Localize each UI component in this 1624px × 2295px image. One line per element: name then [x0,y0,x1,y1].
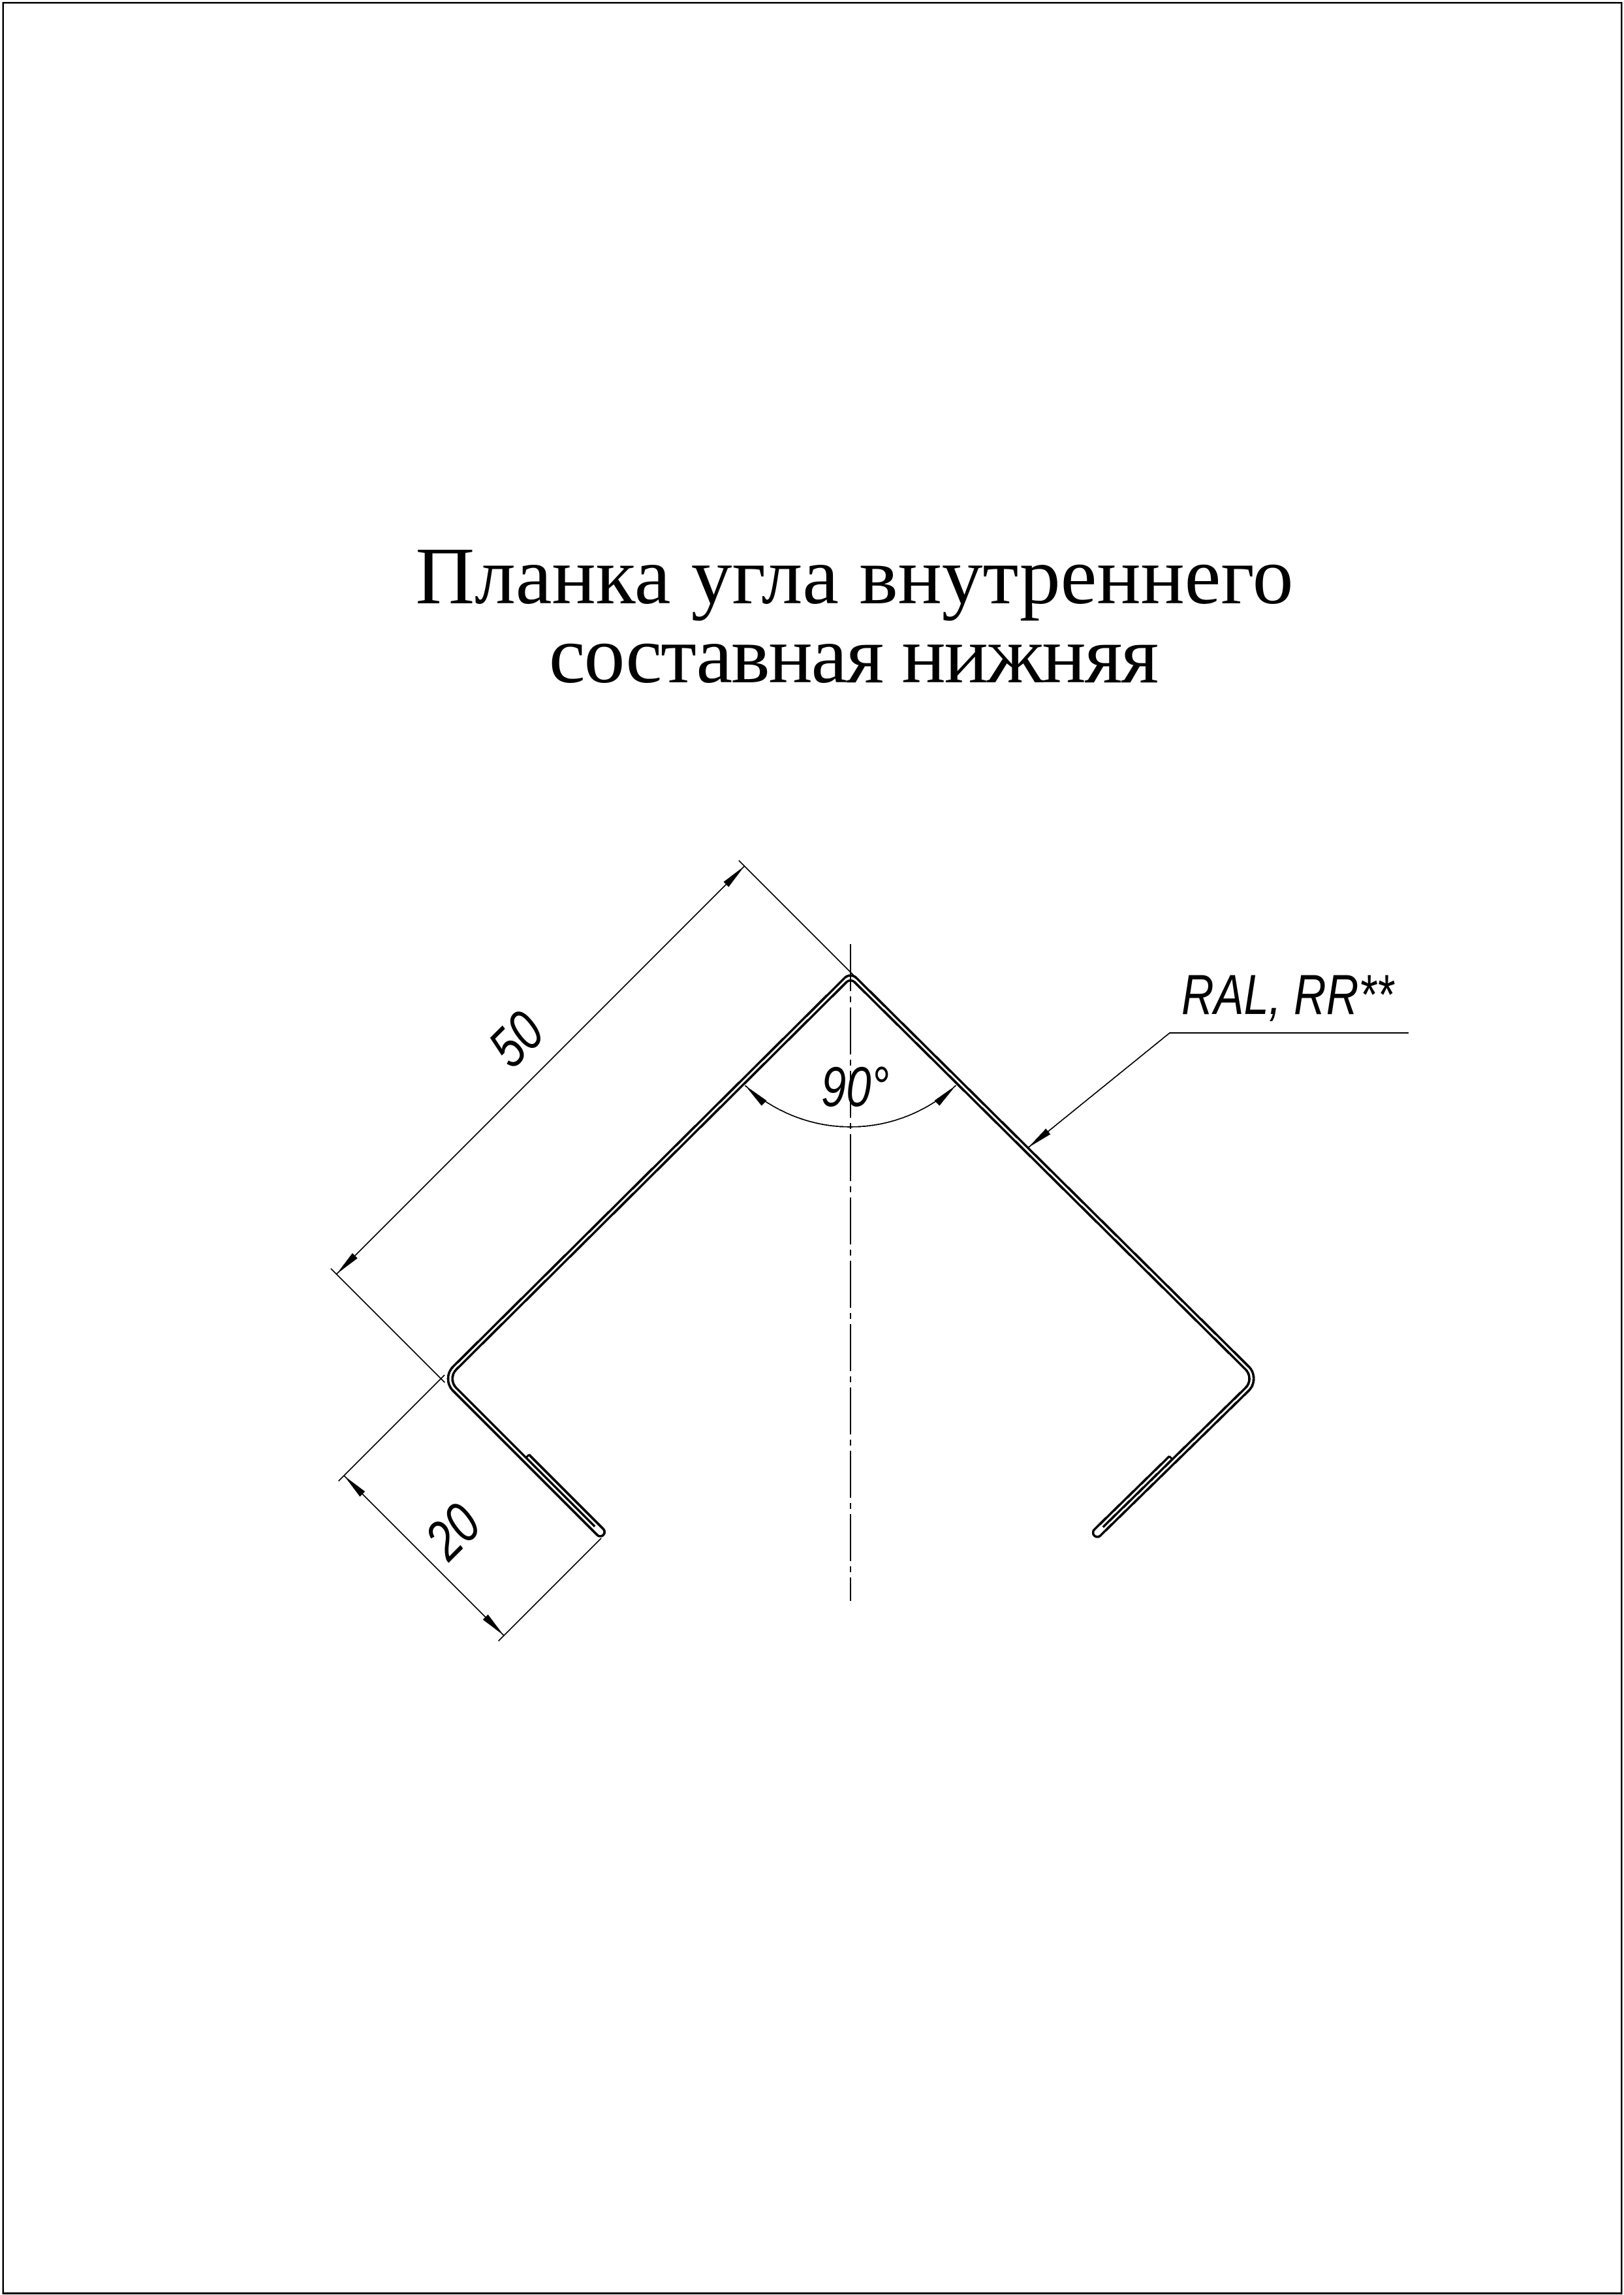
svg-text:Планка угла внутреннего: Планка угла внутреннего [416,531,1294,622]
svg-text:90°: 90° [821,1056,889,1118]
svg-text:RAL, RR**: RAL, RR** [1181,964,1395,1026]
svg-text:составная нижняя: составная нижняя [549,610,1158,701]
